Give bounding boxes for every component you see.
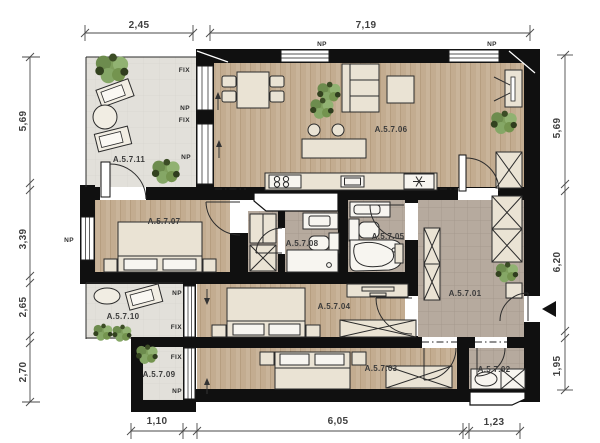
wardrobe-icon bbox=[340, 320, 416, 337]
room-label-09: A.5.7.09 bbox=[143, 370, 176, 379]
window-top-1 bbox=[281, 50, 329, 62]
window-terrace-2 bbox=[197, 124, 213, 184]
dim-label: 5,69 bbox=[18, 111, 29, 132]
window-balcony-09 bbox=[184, 348, 195, 399]
plant-icon bbox=[112, 325, 131, 342]
sofa bbox=[342, 64, 379, 112]
wardrobe-icon bbox=[492, 229, 522, 262]
dim-label: 7,19 bbox=[356, 20, 377, 31]
kitchen-island bbox=[302, 139, 366, 158]
window-top-2 bbox=[449, 50, 499, 62]
fix-label: FIX bbox=[171, 354, 183, 361]
fridge-icon bbox=[404, 174, 434, 189]
nightstand bbox=[306, 325, 320, 337]
room-label-02: A.5.7.02 bbox=[478, 365, 511, 374]
chair bbox=[270, 91, 284, 102]
double-bed bbox=[227, 288, 305, 337]
door-leaf bbox=[459, 155, 466, 191]
dining-table bbox=[237, 72, 269, 108]
np-label: NP bbox=[317, 41, 327, 48]
round-table bbox=[93, 105, 117, 129]
dim-label: 2,70 bbox=[18, 362, 29, 383]
coffee-table bbox=[387, 76, 414, 103]
room-label-04: A.5.7.04 bbox=[318, 302, 351, 311]
np-label: NP bbox=[64, 237, 74, 244]
fix-label: FIX bbox=[179, 117, 191, 124]
wardrobe-icon bbox=[496, 152, 522, 188]
sink-icon bbox=[341, 176, 364, 187]
dim-label: 1,95 bbox=[552, 356, 563, 377]
shower-icon bbox=[287, 250, 338, 272]
np-label: NP bbox=[487, 41, 497, 48]
chair bbox=[270, 76, 284, 87]
room-label-11: A.5.7.11 bbox=[113, 155, 145, 164]
desk bbox=[347, 284, 408, 297]
nightstand bbox=[104, 259, 117, 272]
floor-plan: 2,45 7,19 1,10 6,05 1,23 5,69 3,39 2,65 … bbox=[0, 0, 600, 443]
stool bbox=[332, 124, 344, 136]
radiator bbox=[395, 244, 403, 263]
chair bbox=[222, 76, 236, 87]
vestibule-furniture bbox=[250, 214, 276, 271]
dim-label: 1,10 bbox=[147, 416, 168, 427]
dim-label: 2,65 bbox=[18, 297, 29, 318]
dim-label: 1,23 bbox=[484, 417, 505, 428]
wardrobe-icon bbox=[250, 245, 276, 271]
entrance-arrow-icon bbox=[542, 301, 556, 317]
room-label-08: A.5.7.08 bbox=[286, 239, 319, 248]
nightstand bbox=[203, 259, 216, 272]
nightstand bbox=[212, 325, 226, 337]
stove-icon bbox=[269, 175, 301, 188]
door-leaf bbox=[101, 162, 110, 197]
wardrobe-icon bbox=[492, 196, 522, 229]
dim-label: 5,69 bbox=[552, 118, 563, 139]
nightstand bbox=[260, 352, 274, 365]
wall-niche bbox=[470, 392, 525, 405]
fix-label: FIX bbox=[171, 324, 183, 331]
sink-icon bbox=[303, 213, 338, 229]
tv-icon bbox=[511, 77, 515, 101]
dim-label: 6,20 bbox=[552, 252, 563, 273]
chair bbox=[222, 91, 236, 102]
fix-label: FIX bbox=[179, 67, 191, 74]
window-terrace-1 bbox=[197, 66, 213, 110]
window-balcony-10 bbox=[184, 286, 195, 337]
oval-table bbox=[94, 288, 120, 304]
room-label-01: A.5.7.01 bbox=[449, 289, 482, 298]
np-label: NP bbox=[181, 154, 191, 161]
floor-plan-drawing: 2,45 7,19 1,10 6,05 1,23 5,69 3,39 2,65 … bbox=[0, 0, 600, 443]
room-label-05: A.5.7.05 bbox=[372, 232, 405, 241]
bedroom-07-furniture bbox=[104, 222, 216, 272]
double-bed bbox=[118, 222, 202, 272]
np-label: NP bbox=[172, 290, 182, 297]
dim-label: 2,45 bbox=[129, 20, 150, 31]
room-label-07: A.5.7.07 bbox=[148, 217, 181, 226]
wardrobe-icon bbox=[424, 264, 440, 300]
room-label-06: A.5.7.06 bbox=[375, 125, 408, 134]
window-bedroom-07 bbox=[81, 217, 94, 260]
np-label: NP bbox=[172, 388, 182, 395]
double-bed bbox=[275, 352, 350, 389]
room-label-10: A.5.7.10 bbox=[107, 312, 140, 321]
np-label: NP bbox=[180, 105, 190, 112]
wardrobe-icon bbox=[424, 228, 440, 264]
shoe-cabinet bbox=[506, 283, 522, 298]
installation-shaft bbox=[254, 193, 338, 211]
room-label-03: A.5.7.03 bbox=[365, 364, 398, 373]
dim-label: 6,05 bbox=[328, 416, 349, 427]
stool bbox=[308, 124, 320, 136]
dim-label: 3,39 bbox=[18, 229, 29, 250]
